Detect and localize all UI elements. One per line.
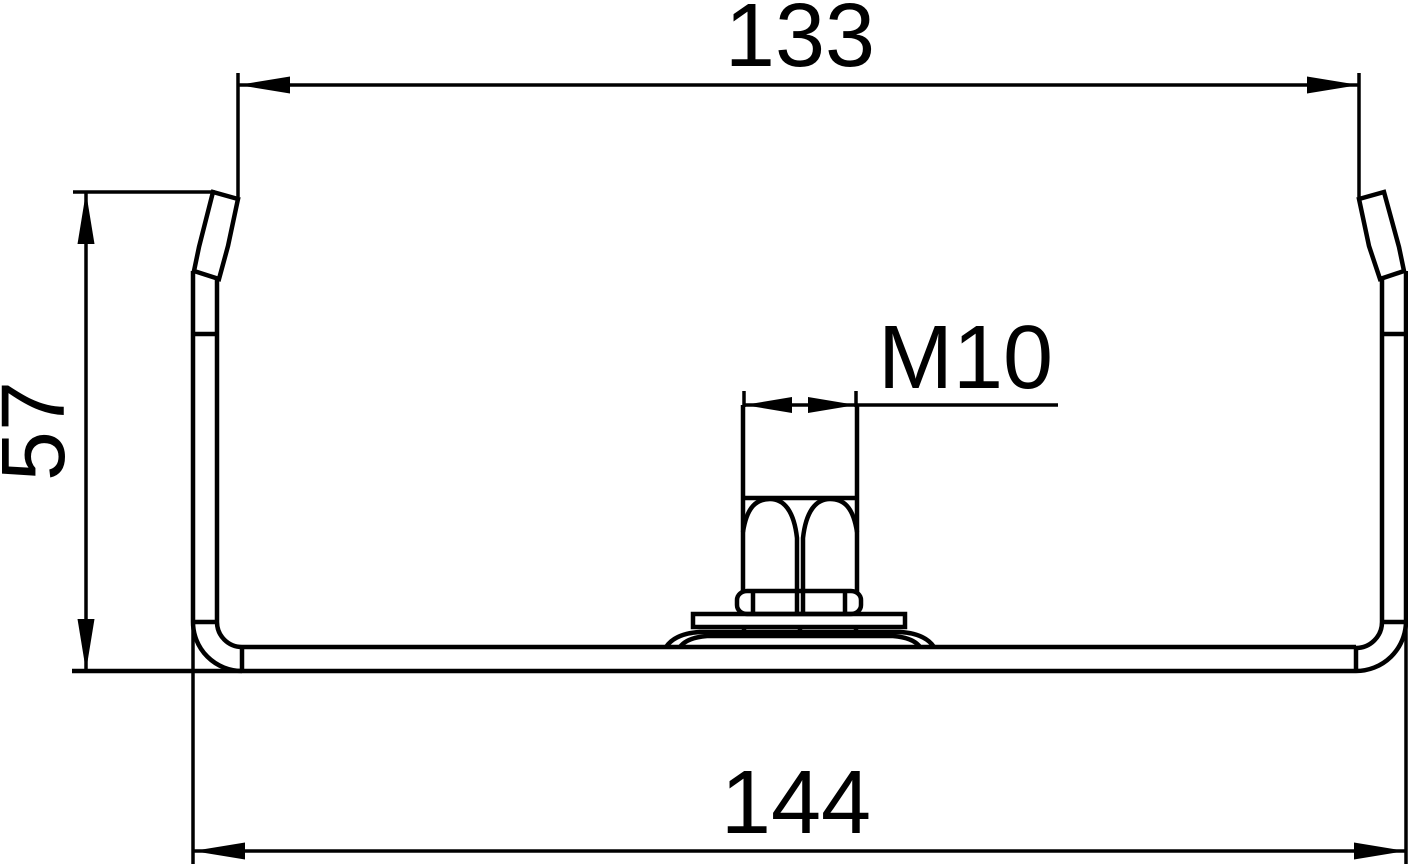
channel-right-wall-inner (1356, 279, 1382, 648)
dim-m10-arrow-left (744, 397, 792, 413)
dim-144-arrow-right (1354, 843, 1406, 860)
dimension-bottom-width: 144 (193, 622, 1406, 864)
nut-facet-arch-left (743, 499, 797, 592)
dim-133-value: 133 (725, 0, 875, 86)
channel-left-wall-inner (217, 279, 242, 647)
dim-144-arrow-left (193, 843, 245, 860)
dimension-side-height: 57 (0, 192, 215, 671)
nut-facet-arch-right (803, 499, 857, 592)
nut-collar-edges (753, 591, 845, 614)
dim-133-extension-lines (238, 73, 1359, 197)
dim-144-value: 144 (721, 753, 871, 853)
channel-right-lip (1359, 192, 1404, 279)
dim-57-arrow-bottom (78, 619, 95, 671)
dim-57-arrow-top (78, 192, 95, 244)
dimension-top-width: 133 (238, 0, 1359, 197)
dimension-thread: M10 (744, 308, 1058, 413)
stud-assembly (666, 405, 934, 647)
washer-plate (693, 614, 905, 627)
channel-left-lip (194, 192, 238, 279)
technical-drawing-canvas: 133 57 144 M10 (0, 0, 1408, 864)
dim-133-arrow-left (238, 77, 290, 94)
dim-133-arrow-right (1307, 77, 1359, 94)
dim-m10-value: M10 (878, 308, 1053, 408)
dim-57-value: 57 (0, 381, 84, 481)
dim-m10-arrow-right (808, 397, 856, 413)
channel-cross-section-drawing: 133 57 144 M10 (0, 0, 1408, 864)
